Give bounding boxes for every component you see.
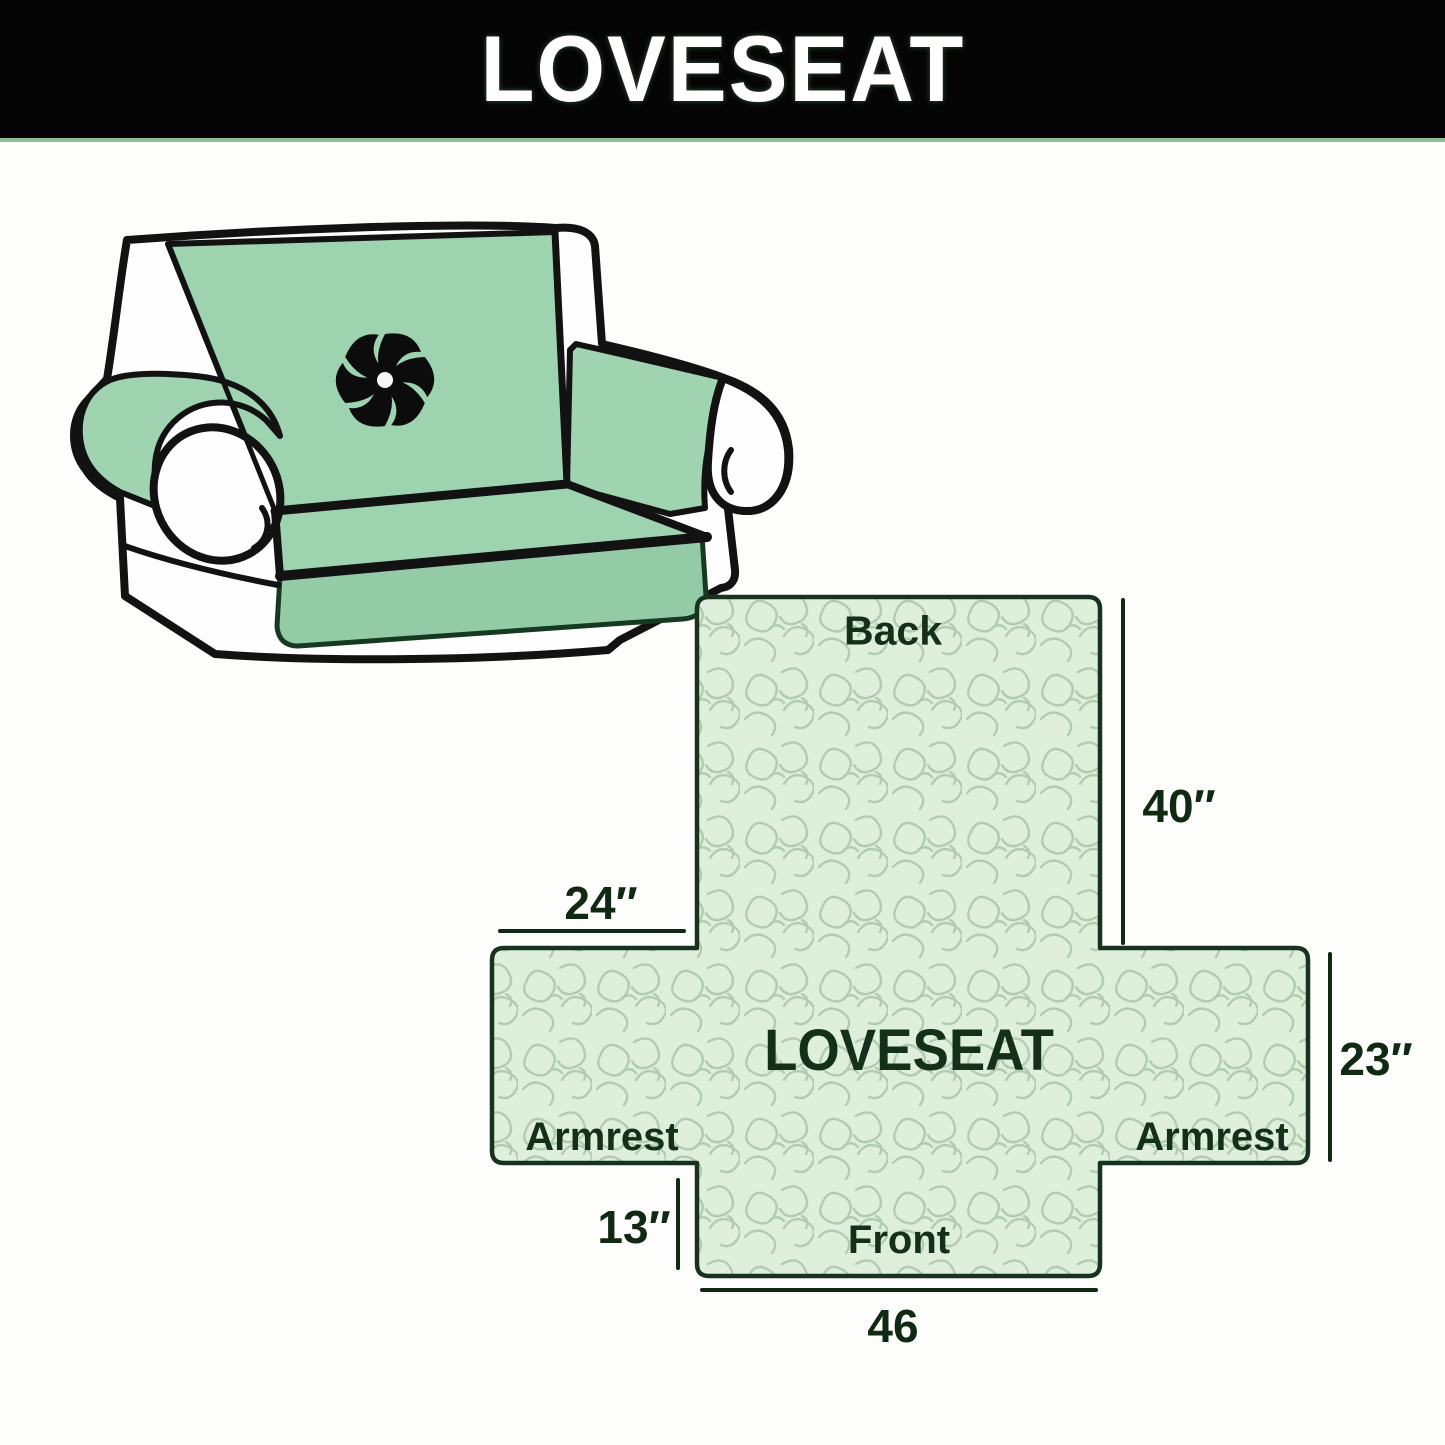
label-center: LOVESEAT (764, 1022, 1054, 1080)
dim-line-24 (498, 929, 686, 933)
cover-diagram (480, 585, 1340, 1300)
label-front: Front (848, 1220, 950, 1260)
dim-armrest-width: 24″ (564, 880, 637, 926)
banner: LOVESEAT (0, 0, 1445, 142)
dim-line-13 (676, 1178, 680, 1270)
label-back: Back (844, 611, 942, 652)
dim-line-23 (1328, 952, 1332, 1162)
dim-back-height: 40″ (1142, 783, 1215, 829)
label-armrest-left: Armrest (525, 1117, 678, 1157)
sofa-right-arm-roll (708, 378, 789, 511)
dim-line-46 (700, 1288, 1098, 1292)
page: LOVESEAT (0, 0, 1445, 1445)
dim-line-40 (1121, 598, 1125, 945)
cover-outline (492, 597, 1308, 1276)
label-armrest-right: Armrest (1135, 1117, 1288, 1157)
dim-side-height: 23″ (1339, 1036, 1412, 1082)
dim-front-side: 13″ (597, 1204, 670, 1250)
banner-title: LOVESEAT (480, 22, 965, 116)
dim-front-width: 46 (867, 1303, 918, 1349)
